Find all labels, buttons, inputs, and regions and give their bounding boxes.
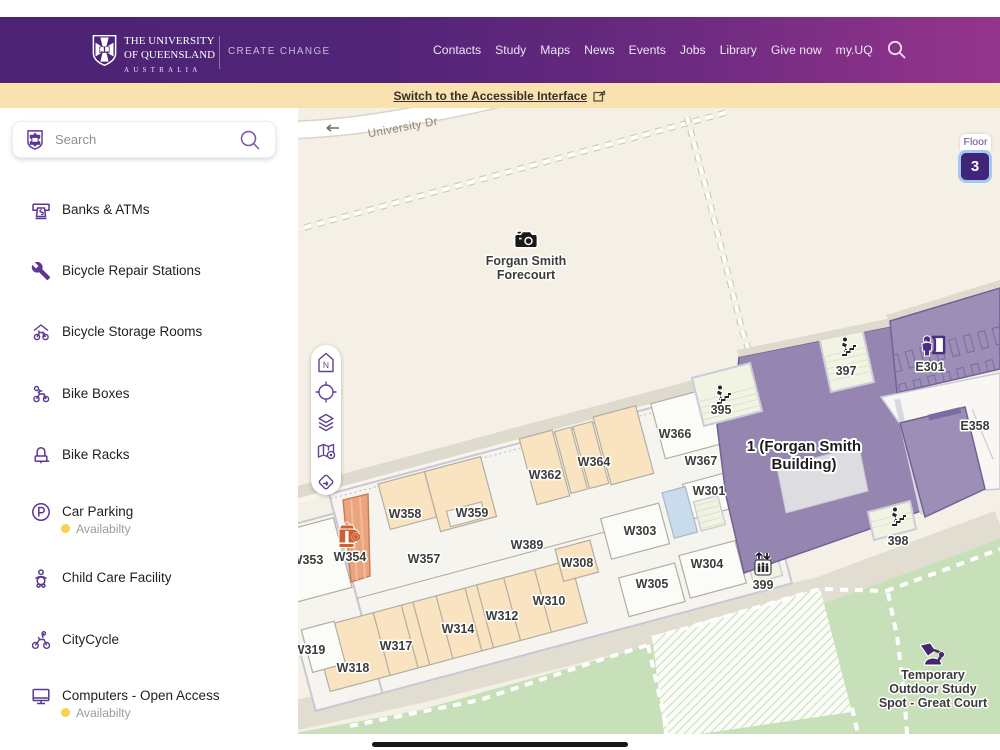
svg-text:W304: W304 xyxy=(691,557,724,571)
svg-text:W303: W303 xyxy=(624,524,657,538)
svg-text:Temporary: Temporary xyxy=(901,668,965,682)
svg-text:W312: W312 xyxy=(486,609,519,623)
svg-text:1 (Forgan Smith: 1 (Forgan Smith xyxy=(747,438,861,455)
svg-text:W364: W364 xyxy=(578,455,611,469)
svg-text:397: 397 xyxy=(836,364,857,378)
svg-text:W317: W317 xyxy=(380,639,413,653)
svg-text:398: 398 xyxy=(888,534,909,548)
svg-text:W310: W310 xyxy=(533,594,566,608)
svg-text:W354: W354 xyxy=(334,550,367,564)
svg-text:N: N xyxy=(323,360,329,370)
svg-text:395: 395 xyxy=(711,403,732,417)
svg-text:Building): Building) xyxy=(772,456,837,473)
svg-text:E301: E301 xyxy=(915,360,944,374)
svg-text:E358: E358 xyxy=(960,419,989,433)
svg-text:W357: W357 xyxy=(408,552,441,566)
svg-text:W319: W319 xyxy=(298,643,325,657)
svg-text:W358: W358 xyxy=(389,507,422,521)
svg-text:W318: W318 xyxy=(337,661,370,675)
svg-text:W367: W367 xyxy=(685,454,718,468)
svg-text:W359: W359 xyxy=(456,506,489,520)
svg-text:W353: W353 xyxy=(298,553,323,567)
svg-text:W314: W314 xyxy=(442,622,475,636)
svg-text:W389: W389 xyxy=(511,538,544,552)
svg-text:W366: W366 xyxy=(659,427,692,441)
svg-text:Spot - Great Court: Spot - Great Court xyxy=(879,696,988,710)
svg-text:399: 399 xyxy=(753,578,774,592)
svg-text:Forgan Smith: Forgan Smith xyxy=(486,254,567,268)
svg-text:W305: W305 xyxy=(636,577,669,591)
svg-text:W362: W362 xyxy=(529,468,562,482)
svg-text:W301: W301 xyxy=(693,484,726,498)
svg-text:Forecourt: Forecourt xyxy=(497,268,556,282)
svg-text:W308: W308 xyxy=(561,556,594,570)
svg-text:Outdoor Study: Outdoor Study xyxy=(889,682,977,696)
